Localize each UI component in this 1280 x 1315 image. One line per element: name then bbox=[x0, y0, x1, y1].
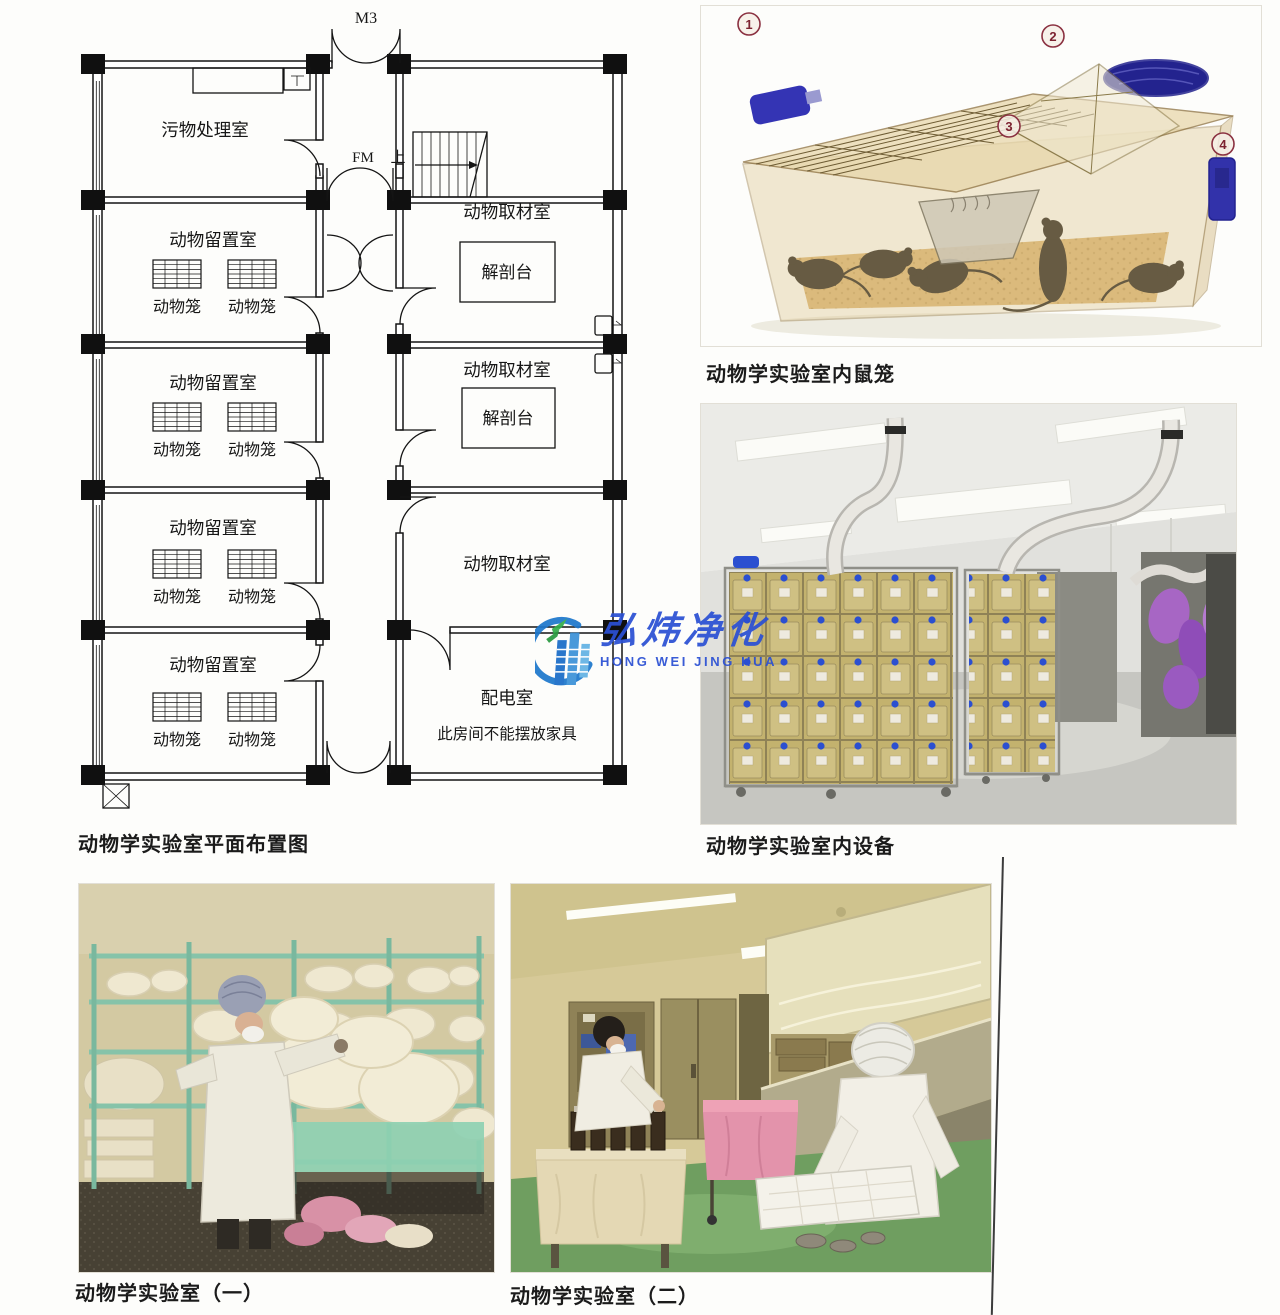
mouse-cage-photo: 1 2 3 4 bbox=[700, 5, 1262, 347]
room-label-holding-3: 动物留置室 bbox=[169, 518, 257, 538]
room-label-holding-1: 动物留置室 bbox=[169, 230, 257, 250]
mouse-cage-illustration: 1 2 3 4 bbox=[700, 5, 1262, 347]
dissection-label-2: 解剖台 bbox=[483, 409, 534, 428]
marker-2: 2 bbox=[1049, 29, 1056, 44]
watermark-cn-name: 弘炜净化 bbox=[598, 612, 779, 653]
room-label-sampling-1: 动物取材室 bbox=[463, 202, 551, 222]
room-label-sampling-3: 动物取材室 bbox=[463, 554, 551, 574]
door-label-fm: FM bbox=[352, 150, 374, 166]
lab-one-photo bbox=[78, 883, 495, 1273]
lab-one-caption: 动物学实验室（一） bbox=[75, 1277, 264, 1306]
dissection-label-1: 解剖台 bbox=[482, 263, 533, 282]
door-label-m3: M3 bbox=[355, 10, 377, 27]
cage-label: 动物笼 bbox=[228, 298, 276, 316]
mouse-cage-caption: 动物学实验室内鼠笼 bbox=[706, 358, 895, 387]
power-room-note: 此房间不能摆放家具 bbox=[437, 725, 577, 743]
room-label-waste: 污物处理室 bbox=[161, 120, 249, 140]
teal-shelf bbox=[274, 1122, 484, 1172]
floor-plan-caption: 动物学实验室平面布置图 bbox=[78, 828, 309, 857]
room-label-power: 配电室 bbox=[481, 688, 534, 708]
cage-label: 动物笼 bbox=[228, 731, 276, 749]
room-label-holding-2: 动物留置室 bbox=[169, 373, 257, 393]
cage-label: 动物笼 bbox=[153, 588, 201, 606]
cage-label: 动物笼 bbox=[153, 298, 201, 316]
door-corridor-south bbox=[327, 741, 390, 773]
cage-label: 动物笼 bbox=[228, 588, 276, 606]
lab-two-caption: 动物学实验室（二） bbox=[510, 1280, 699, 1309]
stair-up-label: 上 bbox=[390, 149, 405, 166]
room-label-sampling-2: 动物取材室 bbox=[463, 360, 551, 380]
page-fold-line bbox=[991, 857, 1004, 1315]
marker-1: 1 bbox=[745, 17, 752, 32]
cage-label: 动物笼 bbox=[228, 441, 276, 459]
room-label-holding-4: 动物留置室 bbox=[169, 655, 257, 675]
lab-two-illustration bbox=[510, 883, 992, 1273]
equipment-illustration bbox=[700, 403, 1237, 825]
watermark-logo: 弘炜净化 HONG WEI JING HUA bbox=[535, 612, 777, 700]
lab-one-illustration bbox=[78, 883, 495, 1273]
equipment-caption: 动物学实验室内设备 bbox=[706, 830, 895, 859]
marker-4: 4 bbox=[1219, 137, 1227, 152]
marker-3: 3 bbox=[1005, 119, 1012, 134]
waste-room-counter bbox=[193, 68, 310, 93]
cage-label: 动物笼 bbox=[153, 731, 201, 749]
door-airshower bbox=[327, 235, 393, 291]
watermark-text: 弘炜净化 HONG WEI JING HUA bbox=[600, 612, 777, 669]
cage-latch bbox=[1209, 158, 1235, 220]
watermark-building-icon bbox=[535, 612, 593, 700]
watermark-en-name: HONG WEI JING HUA bbox=[600, 654, 777, 669]
staircase bbox=[413, 132, 487, 197]
equipment-photo bbox=[700, 403, 1237, 825]
cage-label: 动物笼 bbox=[153, 441, 201, 459]
room-doors bbox=[284, 140, 450, 681]
lab-two-photo bbox=[510, 883, 992, 1273]
